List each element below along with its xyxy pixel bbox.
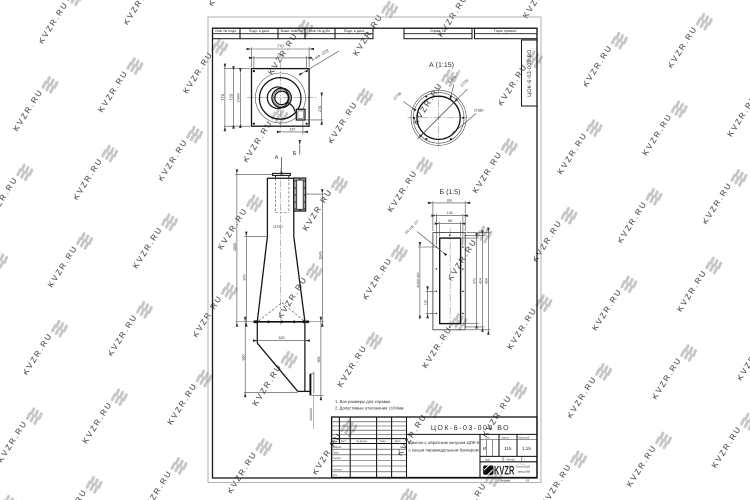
svg-text:970: 970 bbox=[242, 275, 246, 281]
svg-text:Разраб.: Разраб. bbox=[333, 446, 342, 449]
svg-text:620: 620 bbox=[279, 336, 285, 340]
svg-text:200х200: 200х200 bbox=[309, 408, 313, 420]
svg-text:Купольный: Купольный bbox=[517, 466, 531, 469]
svg-text:404: 404 bbox=[479, 278, 483, 284]
svg-text:Взам. инв. №: Взам. инв. № bbox=[281, 29, 303, 33]
svg-text:115: 115 bbox=[504, 446, 512, 451]
svg-text:Б (1:5): Б (1:5) bbox=[440, 188, 461, 196]
svg-text:900: 900 bbox=[317, 357, 321, 363]
svg-text:∅180: ∅180 bbox=[474, 109, 483, 113]
svg-text:Справ. №: Справ. № bbox=[430, 29, 446, 33]
svg-text:с косым пирамидальным бункеро: с косым пирамидальным бункером bbox=[409, 448, 479, 453]
svg-text:1. Все размеры для справок.: 1. Все размеры для справок. bbox=[335, 399, 391, 404]
svg-text:Масштаб: Масштаб bbox=[519, 436, 530, 439]
svg-text:770: 770 bbox=[220, 93, 225, 100]
svg-text:Лит.: Лит. bbox=[486, 436, 491, 439]
svg-text:Подп. и дата: Подп. и дата bbox=[249, 29, 270, 33]
svg-text:3х100=300: 3х100=300 bbox=[416, 272, 420, 288]
svg-text:424: 424 bbox=[485, 278, 489, 284]
svg-text:2800: 2800 bbox=[233, 243, 237, 251]
svg-text:Инв. № дубл.: Инв. № дубл. bbox=[309, 29, 331, 33]
svg-text:Дата: Дата bbox=[395, 440, 401, 443]
svg-text:∅370: ∅370 bbox=[273, 225, 282, 229]
svg-text:Циклон с обратным конусом ЦОК-: Циклон с обратным конусом ЦОК-6 bbox=[409, 440, 480, 445]
svg-text:Подп.: Подп. bbox=[380, 440, 387, 443]
svg-text:96: 96 bbox=[448, 219, 452, 223]
svg-text:Б: Б bbox=[293, 151, 297, 157]
svg-text:150: 150 bbox=[446, 199, 452, 203]
svg-text:Формат: Формат bbox=[500, 478, 511, 482]
svg-text:завод КВЗ: завод КВЗ bbox=[518, 471, 531, 474]
svg-text:130: 130 bbox=[447, 211, 453, 215]
svg-text:Подп. и дата: Подп. и дата bbox=[344, 29, 365, 33]
svg-text:ЦОК-6-03-000 ВО: ЦОК-6-03-000 ВО bbox=[431, 425, 510, 432]
svg-text:237: 237 bbox=[289, 128, 295, 132]
svg-text:Пров.: Пров. bbox=[333, 451, 340, 454]
svg-text:100: 100 bbox=[424, 300, 428, 305]
svg-text:Инв. № подл.: Инв. № подл. bbox=[215, 29, 237, 33]
svg-text:№ докум.: № докум. bbox=[356, 440, 367, 443]
svg-text:∅640: ∅640 bbox=[237, 93, 241, 102]
svg-text:Утв.: Утв. bbox=[333, 474, 338, 477]
svg-text:Лист: Лист bbox=[341, 440, 347, 443]
svg-text:Лист: Лист bbox=[485, 458, 491, 461]
svg-text:ЦОК-6-03-000 ВО: ЦОК-6-03-000 ВО bbox=[527, 49, 533, 96]
svg-text:1645: 1645 bbox=[318, 252, 322, 260]
svg-text:1:15: 1:15 bbox=[522, 446, 531, 451]
svg-text:А (1:15): А (1:15) bbox=[429, 61, 454, 69]
svg-text:2. Допустимые отклонения ±100: 2. Допустимые отклонения ±100мм bbox=[335, 406, 404, 411]
svg-text:Изм.: Изм. bbox=[333, 440, 339, 443]
svg-text:Перв. примен.: Перв. примен. bbox=[494, 29, 517, 33]
svg-text:278: 278 bbox=[318, 106, 322, 112]
svg-text:KVZR: KVZR bbox=[494, 463, 514, 477]
svg-text:А3: А3 bbox=[526, 478, 530, 482]
svg-text:Масса: Масса bbox=[502, 436, 510, 439]
svg-text:А: А bbox=[275, 155, 279, 161]
svg-text:370: 370 bbox=[473, 278, 477, 284]
svg-text:770: 770 bbox=[277, 44, 284, 49]
svg-text:Н.контр.: Н.контр. bbox=[333, 468, 343, 471]
svg-text:720: 720 bbox=[229, 93, 234, 100]
svg-text:Листов: Листов bbox=[507, 458, 516, 461]
svg-text:720: 720 bbox=[277, 53, 284, 58]
svg-text:И: И bbox=[483, 446, 486, 451]
svg-text:910: 910 bbox=[241, 355, 245, 361]
svg-text:Т.контр.: Т.контр. bbox=[333, 457, 342, 460]
